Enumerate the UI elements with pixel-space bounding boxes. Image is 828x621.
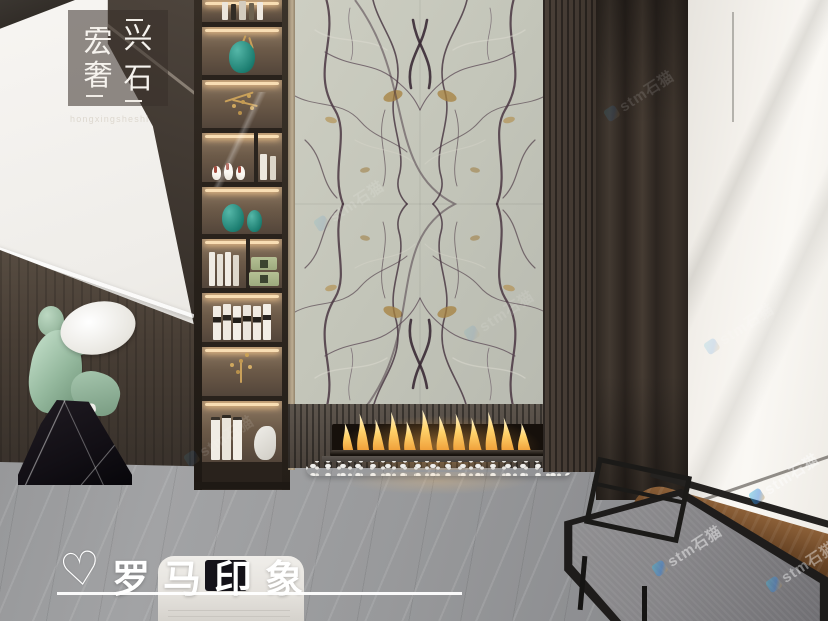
glass-railing-reflection — [194, 92, 290, 187]
book — [233, 306, 241, 340]
book — [243, 305, 251, 340]
shelf-cell-gold-leaves — [202, 347, 282, 396]
book — [231, 4, 236, 20]
gold-leaves — [230, 363, 234, 367]
book — [249, 3, 254, 20]
dark-curtain — [596, 0, 693, 500]
logo-dash — [125, 100, 142, 102]
shelf-cell-teal-vase — [202, 27, 282, 75]
teal-vase — [222, 204, 244, 232]
gold-stem — [240, 361, 242, 383]
teal-vase — [229, 41, 255, 73]
fireplace-flames — [336, 406, 542, 452]
teal-vase-small — [247, 210, 262, 232]
logo-dash — [86, 95, 103, 97]
book — [239, 1, 246, 20]
shelf-cell-books-top — [202, 0, 282, 22]
green-gift-box — [249, 272, 279, 286]
book — [213, 306, 221, 340]
horse-head-sculpture — [254, 426, 276, 460]
heart-icon: ♡ — [56, 539, 104, 598]
logo-char: 奢 — [78, 59, 118, 92]
logo-characters: 宏 兴 奢 石 — [78, 26, 158, 92]
book — [263, 304, 271, 340]
shelf-cell-banded-books — [202, 293, 282, 342]
logo-char: 兴 — [118, 22, 158, 55]
book — [222, 2, 228, 20]
book — [223, 304, 231, 340]
book — [253, 306, 261, 340]
bookshelf-base-shadow — [194, 482, 290, 489]
book — [257, 2, 263, 20]
signature-title: 罗马印象 — [112, 548, 316, 603]
logo-char: 石 — [118, 62, 158, 95]
shelf-cell-teal-vases — [202, 187, 282, 234]
book — [233, 255, 239, 286]
statue-black-marble-base — [18, 400, 132, 485]
logo-subtext: hongxingsheshi — [70, 114, 180, 124]
book — [209, 252, 215, 286]
book — [217, 254, 223, 286]
green-gift-box — [251, 257, 277, 270]
book — [225, 252, 231, 286]
logo-char: 宏 — [78, 26, 118, 59]
bench-leg — [642, 586, 647, 621]
green-statue — [12, 280, 138, 485]
signature-underline — [57, 592, 462, 595]
marble-edge-trim — [288, 0, 295, 470]
interior-render-scene: 宏 兴 奢 石 hongxingsheshi ♡ 罗马印象 stm石猫 stm石… — [0, 0, 828, 621]
shelf-cell-books-boxes — [202, 239, 282, 288]
floor-fire-reflection — [312, 472, 562, 502]
